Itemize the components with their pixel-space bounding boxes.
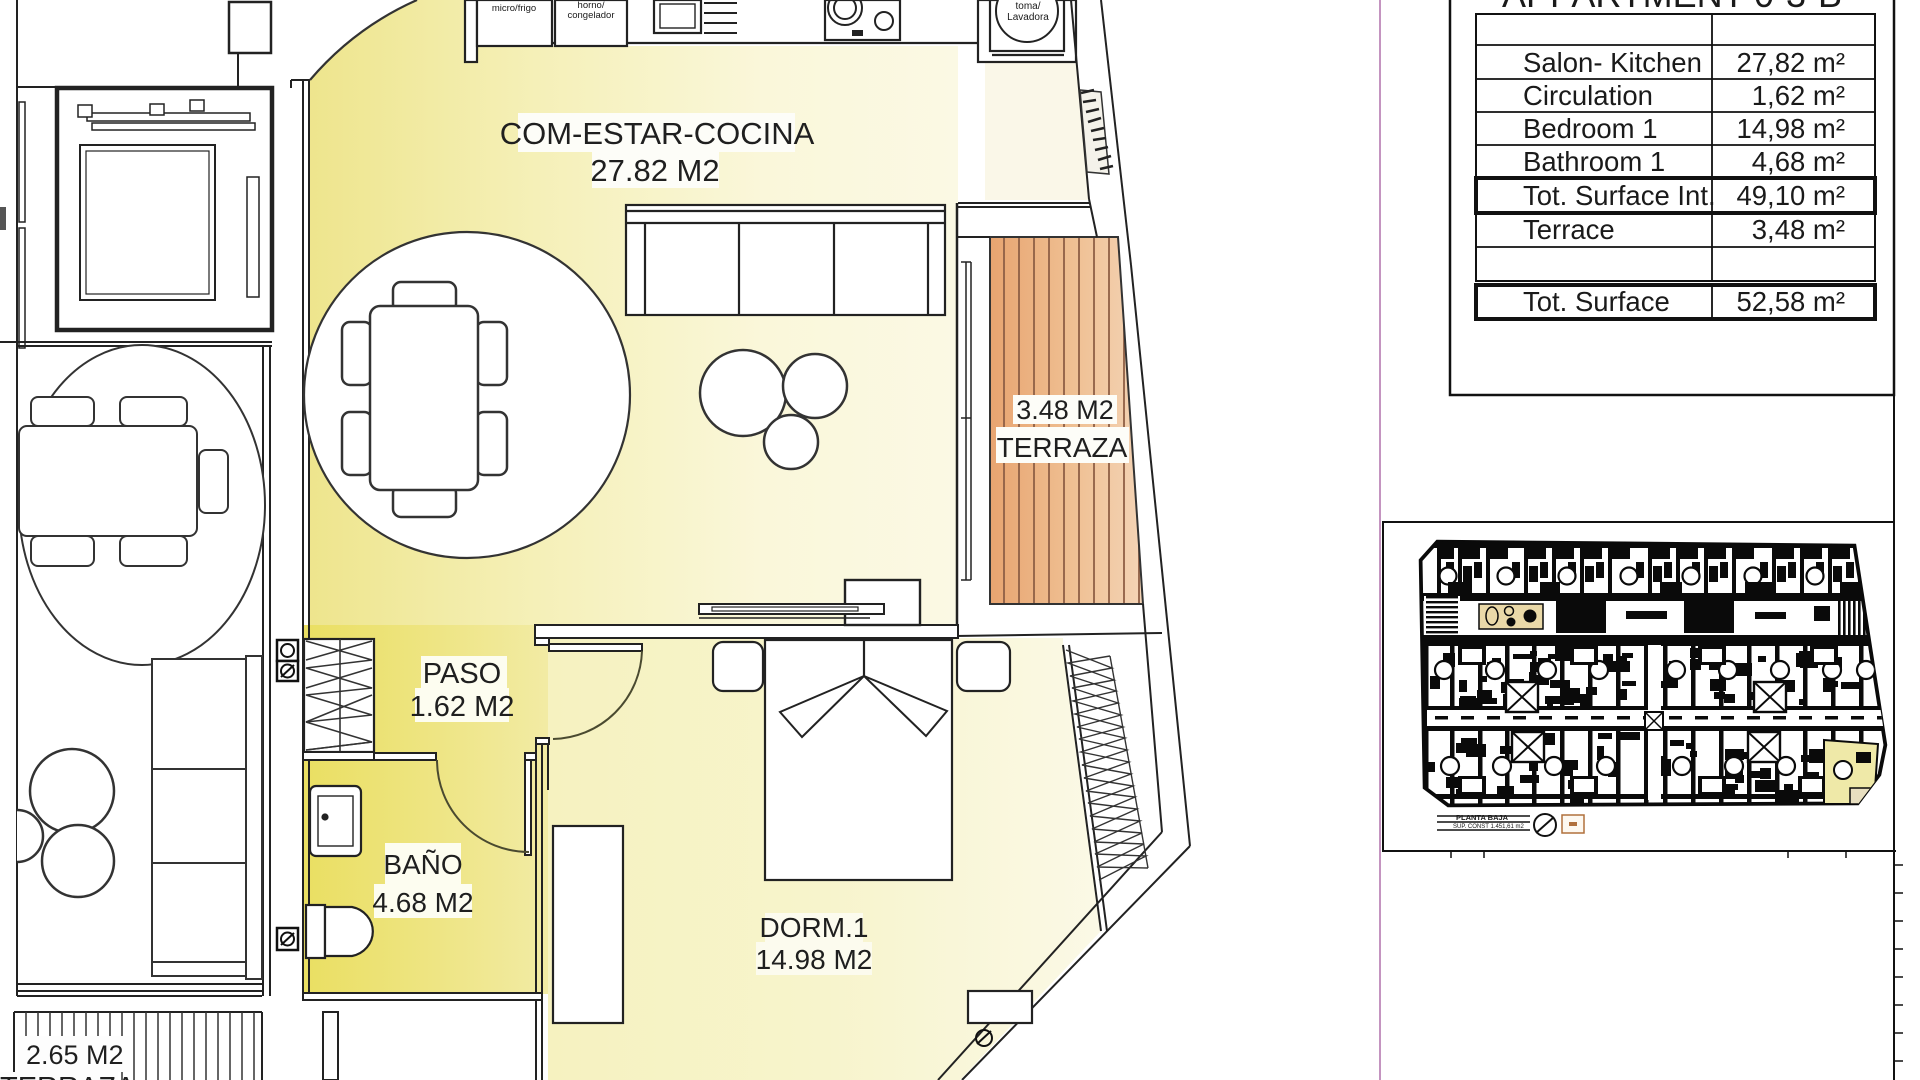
svg-text:APPARTMENT 0-3-B: APPARTMENT 0-3-B [1502, 0, 1842, 15]
svg-text:Bathroom 1: Bathroom 1 [1523, 146, 1665, 177]
svg-text:27.82 M2: 27.82 M2 [590, 153, 719, 188]
svg-text:52,58 m²: 52,58 m² [1736, 286, 1845, 317]
svg-text:Terrace: Terrace [1523, 214, 1615, 245]
svg-text:Lavadora: Lavadora [1007, 12, 1049, 23]
svg-text:49,10 m²: 49,10 m² [1736, 180, 1845, 211]
svg-text:4,68 m²: 4,68 m² [1752, 146, 1845, 177]
svg-text:Circulation: Circulation [1523, 80, 1653, 111]
svg-text:BAÑO: BAÑO [383, 849, 462, 880]
svg-text:TERRAZA: TERRAZA [0, 1072, 136, 1080]
svg-text:COM-ESTAR-COCINA: COM-ESTAR-COCINA [500, 116, 815, 151]
svg-text:toma/: toma/ [1015, 1, 1040, 12]
svg-text:PASO: PASO [423, 658, 501, 690]
svg-text:3,48 m²: 3,48 m² [1752, 214, 1845, 245]
svg-text:PLANTA BAJA: PLANTA BAJA [1456, 813, 1509, 822]
svg-text:DORM.1: DORM.1 [760, 912, 869, 943]
svg-text:Tot. Surface Int.: Tot. Surface Int. [1523, 180, 1716, 211]
svg-text:micro/frigo: micro/frigo [492, 3, 536, 14]
svg-text:14,98 m²: 14,98 m² [1736, 113, 1845, 144]
svg-text:Tot. Surface: Tot. Surface [1523, 286, 1670, 317]
svg-text:27,82 m²: 27,82 m² [1736, 47, 1845, 78]
svg-text:SUP. CONST 1.451,61 m2: SUP. CONST 1.451,61 m2 [1453, 824, 1524, 830]
svg-text:1,62 m²: 1,62 m² [1752, 80, 1845, 111]
svg-text:congelador: congelador [567, 10, 614, 21]
svg-text:3.48 M2: 3.48 M2 [1016, 395, 1114, 425]
svg-text:1.62 M2: 1.62 M2 [410, 691, 515, 723]
svg-text:Salon- Kitchen: Salon- Kitchen [1523, 47, 1702, 78]
svg-text:2.65 M2: 2.65 M2 [26, 1040, 124, 1070]
svg-text:TERRAZA: TERRAZA [997, 432, 1128, 463]
svg-text:Bedroom 1: Bedroom 1 [1523, 113, 1658, 144]
svg-text:14.98 M2: 14.98 M2 [756, 944, 873, 975]
svg-text:4.68 M2: 4.68 M2 [372, 887, 473, 918]
